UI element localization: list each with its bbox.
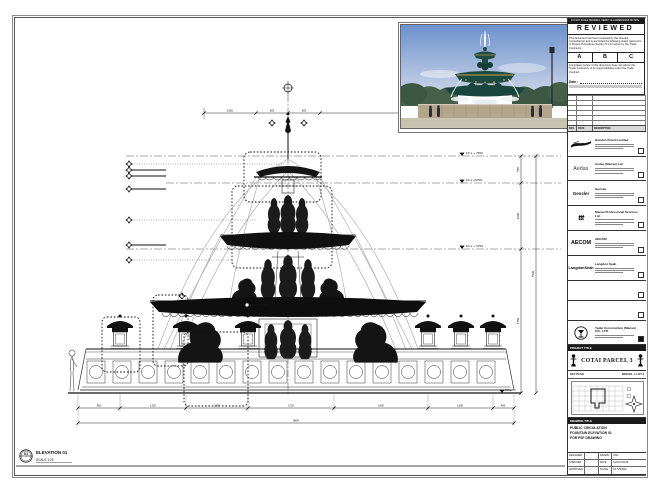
elevation-title: ELEVATION 01 xyxy=(36,450,68,455)
stamp-body-text: This document has been reviewed by the r… xyxy=(567,35,644,52)
consultant-box: Aedas Aedas (Macau) Ltd. xyxy=(568,157,646,181)
bottom-dim-total-label: 8800 xyxy=(293,419,299,423)
contractor-logo-icon xyxy=(568,326,594,340)
fountain-photo-image xyxy=(400,24,570,129)
bottom-dimension-chains: 850 1325 1250 1725 1900 1300 450 8800 xyxy=(76,393,515,426)
elevation-scale: SCALE 1:25 xyxy=(36,458,54,462)
human-scale-figure xyxy=(69,350,77,391)
drawing-title-line: FOR FSF DRAWING xyxy=(570,436,644,441)
stamp-disclaimer-text: Consultant review of this document does … xyxy=(567,63,644,76)
consultant-name: Macau Professional Services Ltd. xyxy=(595,211,641,218)
key-plan-map xyxy=(568,379,646,418)
project-banner: COTAI PARCEL 3 xyxy=(568,351,646,371)
contractor-box: Yadie Construction (Macau) CO., LTD. xyxy=(568,321,646,345)
empty-consultant-box xyxy=(568,301,646,321)
lamp-ornament-icon xyxy=(570,354,577,367)
scale-value: AS SHOWN xyxy=(612,467,646,474)
checked-label: CHECKED xyxy=(568,460,585,466)
ttt-logo: ttt xyxy=(578,215,584,222)
consultant-name: AECOM xyxy=(595,238,641,241)
checked-value: - xyxy=(585,460,599,466)
top-dim-label: 1850 xyxy=(227,109,233,113)
stamp-date-label: Date : xyxy=(569,80,578,84)
designed-label: DESIGNED xyxy=(568,453,585,459)
level-label: F.F.L +6750 xyxy=(466,178,482,182)
stamp-date-row: Date : xyxy=(567,76,644,84)
consultant-checkbox xyxy=(638,312,644,318)
empty-consultant-box xyxy=(568,281,646,301)
consultant-box: AECOM AECOM xyxy=(568,231,646,256)
revision-rows xyxy=(568,95,646,126)
aedas-logo: Aedas xyxy=(573,166,588,172)
approved-label: APPROVED xyxy=(568,467,585,474)
revision-col-rev: REV. xyxy=(568,126,577,131)
consultant-checkbox xyxy=(638,148,644,154)
level-label: F.F.L + 7500 xyxy=(466,151,483,155)
consultant-checkbox xyxy=(638,172,644,178)
right-dim-label: 4750 xyxy=(516,317,520,324)
consultant-checkbox xyxy=(638,247,644,253)
key-plan-label: KEY PLAN xyxy=(570,373,584,376)
consultant-name: Aedas (Macau) Ltd. xyxy=(595,163,641,166)
date-value: 12/AUG/2016 xyxy=(612,460,646,466)
revision-col-description: DESCRIPTION xyxy=(593,126,646,131)
project-name: COTAI PARCEL 3 xyxy=(581,358,633,364)
consultant-checkbox xyxy=(638,292,644,298)
reviewed-stamp: DO NOT SCALE DRAWING. VERIFY ALL DIMENSI… xyxy=(567,18,645,95)
wall-panels xyxy=(87,361,495,383)
revision-col-date: DATE xyxy=(577,126,593,131)
right-dim-label: 2000 xyxy=(516,212,520,219)
drawing-info-table: DESIGNED - DRAWN CAD CHECKED - DATE 12/A… xyxy=(568,453,646,475)
consultant-name: Handon Orient Limited xyxy=(595,139,641,142)
bottom-dim-label: 1325 xyxy=(150,404,156,408)
consultant-box: Gensler Gensler xyxy=(568,181,646,206)
consultant-checkbox xyxy=(638,222,644,228)
bottom-dim-label: 850 xyxy=(97,404,102,408)
top-dim-label: 650 xyxy=(270,109,275,113)
stamp-title: REVIEWED xyxy=(567,24,644,35)
right-dimension-chains: 750 2000 4750 7500 xyxy=(516,154,538,394)
right-dim-label: 750 xyxy=(516,167,520,172)
consultant-logo-swoosh-icon xyxy=(568,139,594,149)
designed-value: - xyxy=(585,453,599,459)
bottom-dim-label: 450 xyxy=(501,404,506,408)
drawing-title-text: PUBLIC CIRCULATION FOUNTAIN ELEVATION 01… xyxy=(568,424,646,453)
level-label: F.F.L ±0 xyxy=(505,388,516,392)
consultant-box: LangdonSeah Langdon Seah xyxy=(568,256,646,281)
right-dim-total-label: 7500 xyxy=(531,270,535,277)
drawing-sheet-page: { "stamp": { "top_bar": "DO NOT SCALE DR… xyxy=(0,0,650,488)
bottom-dim-label: 1300 xyxy=(457,404,463,408)
bottom-dim-label: 1725 xyxy=(288,404,294,408)
title-block: DO NOT SCALE DRAWING. VERIFY ALL DIMENSI… xyxy=(567,18,646,475)
gensler-logo: Gensler xyxy=(573,191,589,196)
status-option-a: A xyxy=(567,53,593,62)
consultant-name: Langdon Seah xyxy=(595,263,641,266)
bottom-dim-label: 1250 xyxy=(214,404,220,408)
sheet-border: 1850 650 650 1850 F.F.L + 7500 F.F.L +67… xyxy=(12,15,648,478)
contractor-checkbox xyxy=(638,336,644,342)
date-label: DATE xyxy=(599,460,612,466)
lamp-ornament-icon xyxy=(637,354,644,367)
consultant-checkbox xyxy=(638,197,644,203)
elevation-callout: 01 ELEVATION 01 SCALE 1:25 xyxy=(16,450,565,466)
consultant-box: ttt Macau Professional Services Ltd. xyxy=(568,206,646,231)
contractor-name: Yadie Construction (Macau) CO., LTD. xyxy=(595,327,641,334)
approved-value: - xyxy=(585,467,599,474)
consultant-checkbox xyxy=(638,272,644,278)
stamp-date-line xyxy=(580,79,642,84)
langdon-seah-logo: LangdonSeah xyxy=(568,266,593,270)
bottom-dim-label: 1900 xyxy=(378,404,384,408)
fountain-reference-photo xyxy=(398,22,574,133)
consultant-name: Gensler xyxy=(595,188,641,191)
status-option-c: C xyxy=(618,53,644,62)
stamp-signature-strip xyxy=(569,85,642,88)
scale-label: SCALE xyxy=(599,467,612,474)
level-label: F.F.L + 4750 xyxy=(466,244,483,248)
consultant-address-line xyxy=(595,144,634,145)
consultant-box: Handon Orient Limited xyxy=(568,132,646,157)
status-option-b: B xyxy=(593,53,619,62)
key-plan-header: KEY PLAN PARCEL 1, LOT 3 xyxy=(568,371,646,379)
drawn-value: CAD xyxy=(612,453,646,459)
aecom-logo: AECOM xyxy=(571,240,591,246)
stamp-status-row: A B C xyxy=(567,52,644,63)
drawn-label: DRAWN xyxy=(599,453,612,459)
top-dim-label: 650 xyxy=(302,109,307,113)
key-plan-note: PARCEL 1, LOT 3 xyxy=(622,373,644,376)
elevation-bubble-number: 01 xyxy=(24,451,29,456)
